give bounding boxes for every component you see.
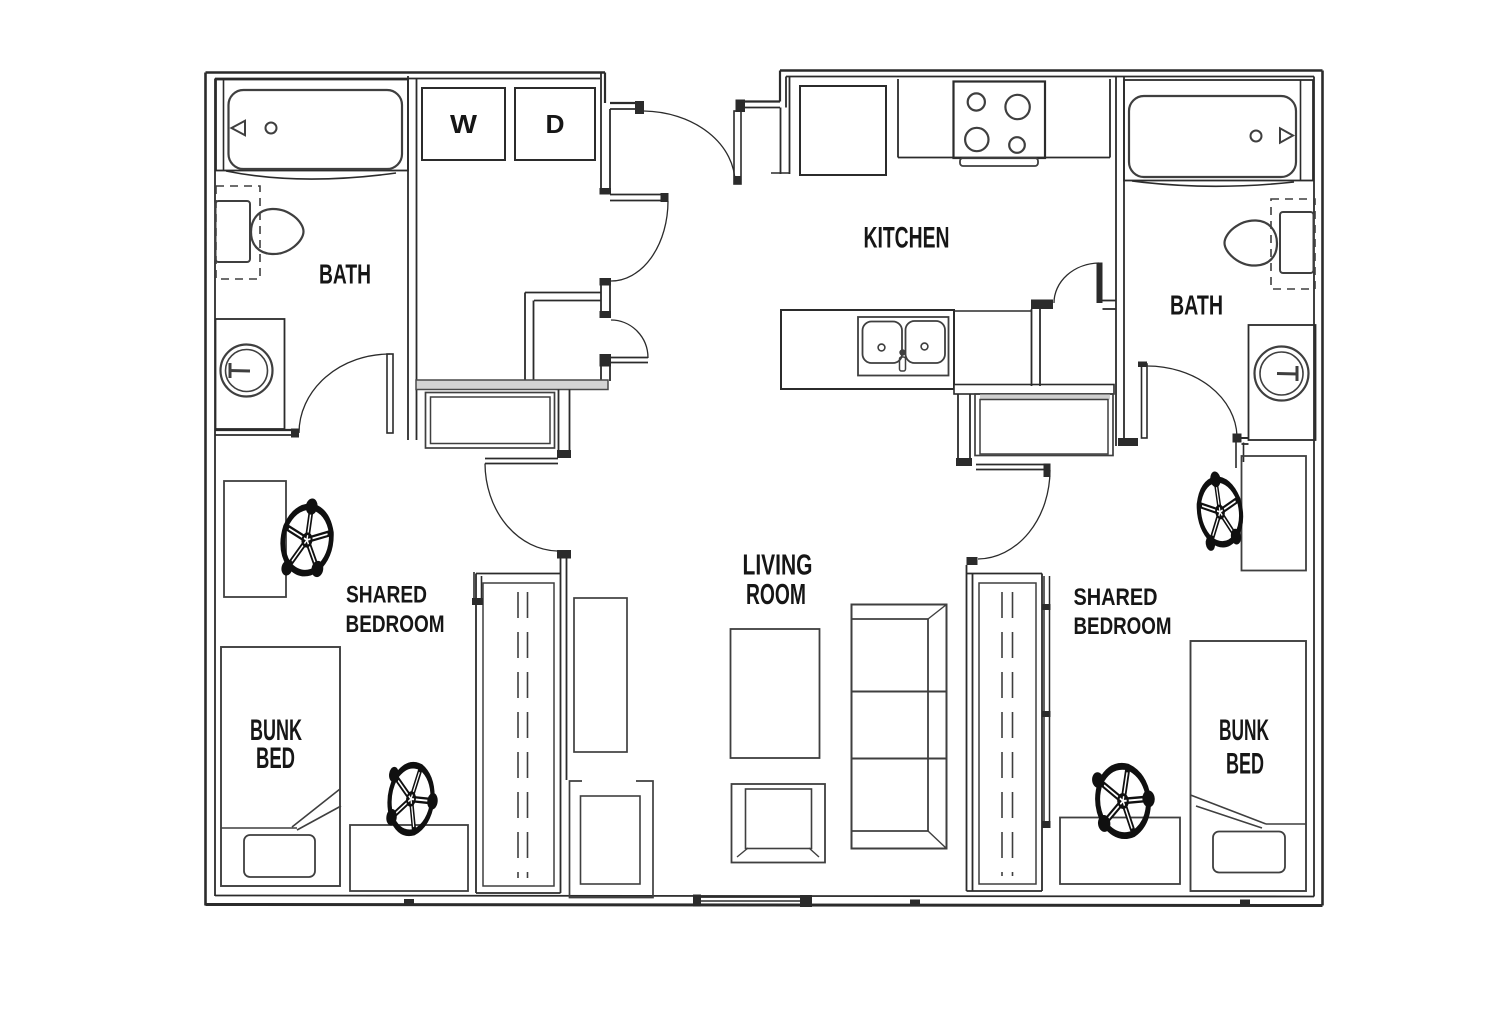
svg-text:BEDROOM: BEDROOM	[346, 611, 445, 638]
svg-text:SHARED: SHARED	[1074, 584, 1158, 611]
svg-text:BATH: BATH	[319, 259, 371, 290]
svg-text:W: W	[450, 109, 477, 139]
svg-text:LIVING: LIVING	[743, 550, 813, 582]
svg-text:BED: BED	[1226, 748, 1264, 781]
svg-text:BUNK: BUNK	[1219, 714, 1269, 747]
svg-text:ROOM: ROOM	[746, 579, 806, 611]
svg-text:D: D	[546, 109, 565, 139]
svg-text:SHARED: SHARED	[346, 582, 427, 609]
svg-text:BEDROOM: BEDROOM	[1074, 613, 1172, 640]
svg-text:KITCHEN: KITCHEN	[864, 222, 950, 255]
svg-text:BATH: BATH	[1170, 290, 1223, 321]
svg-text:BED: BED	[256, 742, 295, 775]
